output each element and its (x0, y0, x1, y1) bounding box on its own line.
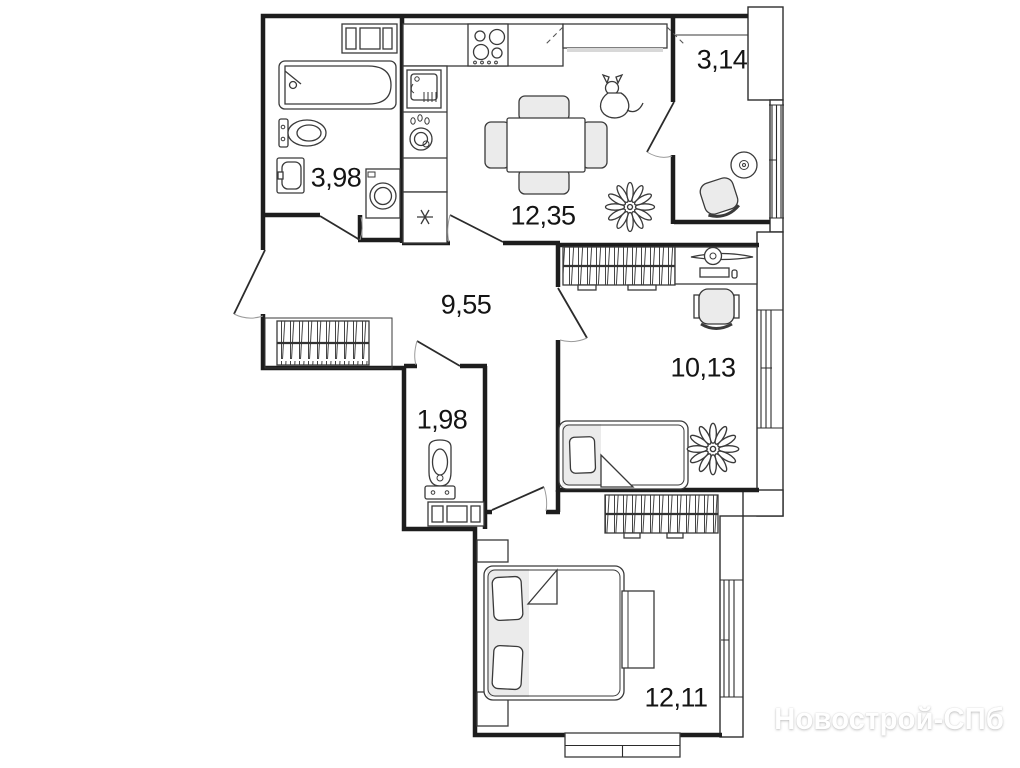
toilet-icon (425, 440, 455, 499)
wc-door (415, 341, 460, 366)
balcony (698, 152, 757, 220)
dining-table-icon (485, 96, 607, 194)
room-area-bedroom-top: 10,13 (670, 353, 735, 384)
bedroom-bottom-door (492, 487, 547, 511)
bedroom-top-door (558, 288, 587, 342)
armchair-icon (698, 176, 741, 221)
round-table-icon (731, 152, 757, 178)
room-area-wc: 1,98 (417, 405, 468, 436)
pillow-icon (492, 576, 523, 620)
bathroom-door (320, 216, 362, 240)
room-area-bathroom: 3,98 (311, 163, 362, 194)
room-area-bedroom-bottom: 12,11 (644, 683, 707, 714)
kitchen-sink-icon (407, 70, 441, 108)
upper-cabinet-icon (545, 24, 685, 52)
pet-dog-icon (601, 75, 643, 118)
wardrobe-icon (277, 321, 369, 365)
developer-watermark: Новострой-СПб (774, 701, 1004, 737)
washbasin-icon (277, 158, 304, 193)
room-area-hallway: 9,55 (441, 290, 492, 321)
bench-icon (622, 591, 654, 668)
pillow-icon (569, 437, 595, 474)
toilet-icon (279, 119, 326, 147)
wall-pier (477, 540, 508, 562)
room-area-kitchen: 12,35 (510, 201, 575, 232)
bedroom-bottom-bay-window (565, 733, 680, 757)
bathtub-icon (279, 61, 396, 109)
single-bed-icon (559, 421, 688, 489)
hob-icon (468, 24, 508, 66)
mouse-icon (732, 270, 737, 278)
washing-machine-icon (366, 169, 400, 218)
double-bed-icon (484, 566, 624, 700)
plant-icon (687, 423, 738, 474)
wc (425, 440, 484, 526)
room-area-balcony: 3,14 (697, 45, 748, 76)
entrance-door (234, 250, 265, 318)
floor-plan: 3,98 12,35 3,14 9,55 1,98 10,13 12,11 Но… (0, 0, 1020, 768)
cabinet-icon (342, 24, 397, 53)
vanity-cabinet-icon (428, 502, 484, 526)
pillow-icon (492, 645, 523, 689)
keyboard-icon (700, 268, 729, 277)
office-chair-icon (694, 289, 739, 329)
kitchen-door (448, 215, 503, 242)
floor-plan-svg (0, 0, 1020, 768)
hallway (265, 318, 392, 368)
desk-icon (675, 247, 757, 284)
plant-icon (606, 183, 655, 232)
wardrobe-icon (563, 247, 675, 290)
fridge-snowflake-icon (403, 192, 447, 243)
balcony-door (647, 102, 674, 157)
wardrobe-icon (605, 495, 718, 538)
